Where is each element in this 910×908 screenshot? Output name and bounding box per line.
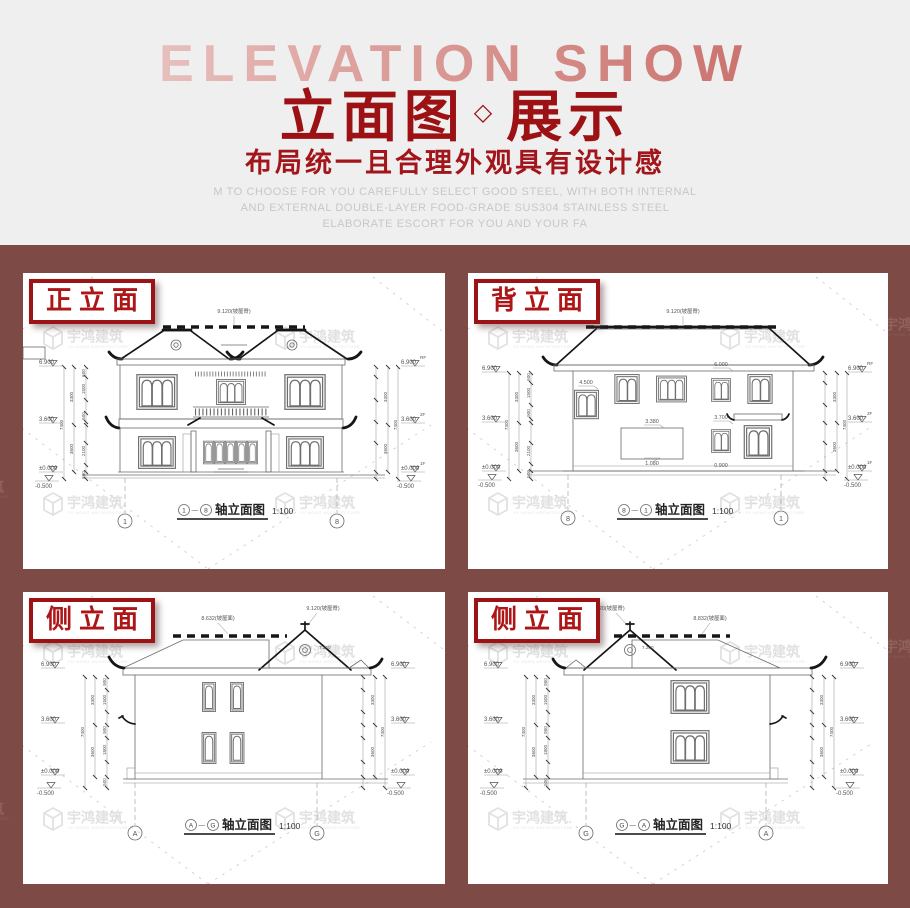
svg-text:500: 500 (81, 471, 86, 479)
svg-text:7400: 7400 (80, 726, 85, 737)
svg-text:1500: 1500 (526, 387, 531, 398)
svg-text:7400: 7400 (59, 419, 64, 430)
hero-description: M TO CHOOSE FOR YOU CAREFULLY SELECT GOO… (0, 184, 910, 232)
svg-text:3300: 3300 (531, 694, 536, 705)
svg-text:—: — (199, 823, 206, 830)
first-floor (118, 428, 344, 472)
watermark-logo (0, 477, 9, 499)
svg-text:6.900: 6.900 (401, 360, 417, 366)
svg-text:7400: 7400 (504, 419, 509, 430)
svg-text:6.900: 6.900 (840, 662, 856, 668)
svg-text:±0.000: ±0.000 (41, 769, 60, 775)
svg-text:—: — (192, 508, 199, 515)
svg-text:±0.000: ±0.000 (484, 769, 503, 775)
gable-annotation: 7.200 (319, 645, 331, 650)
dimensions-left: 900 1500 900 1800 500 3300 3600 7400 (80, 675, 109, 790)
svg-text:-0.500: -0.500 (37, 791, 55, 797)
svg-text:2100: 2100 (81, 445, 86, 456)
svg-text:6.000: 6.000 (714, 362, 728, 368)
svg-text:G: G (583, 829, 589, 838)
svg-text:3.600: 3.600 (401, 417, 417, 423)
svg-text:G: G (619, 822, 624, 829)
ground (528, 471, 836, 475)
svg-text:1:100: 1:100 (279, 821, 301, 831)
svg-text:500: 500 (102, 778, 107, 786)
svg-text:0.900: 0.900 (714, 463, 728, 469)
ridge-label: 9.120(坡屋脊) (666, 307, 699, 315)
svg-text:8: 8 (335, 517, 339, 526)
svg-text:3300: 3300 (819, 694, 824, 705)
svg-text:900: 900 (102, 678, 107, 686)
svg-text:3.600: 3.600 (41, 717, 57, 723)
svg-text:3600: 3600 (69, 443, 74, 454)
svg-text:±0.000: ±0.000 (391, 769, 410, 775)
card-front-elevation: 9.120(坡屋脊) (23, 273, 445, 569)
svg-text:6.900: 6.900 (484, 662, 500, 668)
svg-text:6.900: 6.900 (848, 366, 864, 372)
ground (123, 779, 388, 783)
svg-text:A: A (189, 822, 194, 829)
svg-text:3.380: 3.380 (645, 419, 659, 425)
svg-text:900: 900 (543, 726, 548, 734)
svg-text:7400: 7400 (842, 419, 847, 430)
gable-annotation: 7.200 (642, 645, 654, 650)
svg-text:RF: RF (867, 361, 873, 366)
elevation-markers: 6.900 3.600 ±0.000 -0.500 6.900 3.600 ±0… (480, 662, 864, 797)
svg-text:6.900: 6.900 (391, 662, 407, 668)
svg-text:轴立面图: 轴立面图 (653, 817, 703, 832)
dimensions-left: 900 1500 900 1800 500 3300 3600 7400 (521, 675, 550, 790)
mid-canopy (106, 417, 356, 428)
svg-text:1:100: 1:100 (272, 506, 294, 516)
svg-text:900: 900 (543, 678, 548, 686)
svg-text:7400: 7400 (521, 726, 526, 737)
ground (83, 475, 385, 478)
svg-text:1500: 1500 (81, 383, 86, 394)
diamond-icon: ◇ (474, 99, 498, 126)
svg-text:8: 8 (622, 507, 626, 514)
roof-label-right: 9.120(坡屋脊) (306, 604, 339, 612)
svg-text:±0.000: ±0.000 (840, 769, 859, 775)
svg-text:900: 900 (526, 409, 531, 417)
svg-text:±0.000: ±0.000 (401, 466, 420, 472)
svg-text:900: 900 (102, 726, 107, 734)
caption: 8 — 1 轴立面图 1:100 (617, 502, 734, 519)
dimensions-right: 3300 3600 7400 (823, 371, 849, 481)
roof-label-right: 8.832(坡屋面) (693, 614, 726, 622)
svg-text:3600: 3600 (514, 441, 519, 452)
desc-line-1: M TO CHOOSE FOR YOU CAREFULLY SELECT GOO… (0, 184, 910, 200)
svg-text:1F: 1F (867, 460, 873, 465)
elevation-markers: 6.900 3.600 ±0.000 -0.500 6.900 3.600 ±0… (37, 662, 415, 797)
svg-text:3600: 3600 (531, 746, 536, 757)
svg-text:3.600: 3.600 (840, 717, 856, 723)
svg-text:2F: 2F (420, 412, 426, 417)
dimensions-left: 600 1500 900 2100 500 3300 3600 7400 (504, 371, 533, 481)
svg-text:—: — (630, 823, 637, 830)
svg-text:3300: 3300 (90, 694, 95, 705)
svg-text:±0.000: ±0.000 (482, 465, 501, 471)
svg-text:500: 500 (543, 778, 548, 786)
svg-text:1.080: 1.080 (645, 461, 659, 467)
svg-text:500: 500 (526, 470, 531, 478)
svg-text:—: — (632, 508, 639, 515)
svg-text:3.600: 3.600 (39, 417, 55, 423)
svg-text:7400: 7400 (829, 726, 834, 737)
roof-label-left: 8.632(坡屋面) (201, 614, 234, 622)
svg-text:7400: 7400 (393, 419, 398, 430)
svg-text:轴立面图: 轴立面图 (655, 502, 705, 517)
svg-text:-0.500: -0.500 (35, 484, 53, 490)
svg-text:3600: 3600 (819, 746, 824, 757)
title-main: 立面图 (280, 85, 466, 148)
elevation-board: 9.120(坡屋脊) (0, 245, 910, 908)
svg-text:3600: 3600 (832, 441, 837, 452)
svg-text:A: A (642, 822, 647, 829)
page: 宇鸿建筑 YU HONG ARCHITECTURE ELEVATION SHOW… (0, 0, 910, 908)
card-side-elevation-ga: 9.120(坡屋脊) 8.832(坡屋面) 7.200 (468, 592, 888, 884)
svg-text:1: 1 (779, 514, 783, 523)
annotations: 4.500 6.000 3.380 1.080 3.700 0.900 (578, 362, 733, 469)
svg-text:3600: 3600 (90, 746, 95, 757)
svg-text:3.600: 3.600 (482, 416, 498, 422)
svg-text:600: 600 (526, 373, 531, 381)
svg-text:1:100: 1:100 (710, 821, 732, 831)
svg-text:1: 1 (123, 517, 127, 526)
svg-text:3.700: 3.700 (714, 415, 728, 421)
svg-text:-0.500: -0.500 (844, 483, 862, 489)
dimensions-right: 3300 3600 7400 (374, 365, 400, 481)
svg-text:轴立面图: 轴立面图 (215, 502, 265, 517)
card-label-side-ag: 侧立面 (29, 598, 155, 643)
ground (523, 779, 788, 783)
svg-text:-0.500: -0.500 (478, 483, 496, 489)
dimensions-left: 600 1500 600 2100 500 3300 3600 7400 (59, 365, 88, 481)
svg-text:600: 600 (81, 369, 86, 377)
svg-text:1800: 1800 (102, 744, 107, 755)
svg-text:1500: 1500 (102, 694, 107, 705)
svg-text:1: 1 (182, 507, 186, 514)
svg-text:4.500: 4.500 (579, 380, 593, 386)
card-label-back: 背立面 (474, 279, 600, 324)
desc-line-3: ELABORATE ESCORT FOR YOU AND YOUR FA (0, 216, 910, 232)
dimensions-right: 3300 3600 7400 (810, 675, 836, 790)
svg-text:3300: 3300 (383, 391, 388, 402)
svg-text:600: 600 (81, 412, 86, 420)
svg-text:-0.500: -0.500 (480, 791, 498, 797)
caption: G — A 轴立面图 1:100 (615, 817, 732, 834)
card-back-elevation: 9.120(坡屋脊) (468, 273, 888, 569)
hero-subtitle: 布局统一且合理外观具有设计感 (0, 141, 910, 180)
wall (119, 675, 322, 779)
svg-text:±0.000: ±0.000 (39, 466, 58, 472)
svg-text:6.900: 6.900 (39, 360, 55, 366)
svg-text:-0.500: -0.500 (397, 484, 415, 490)
wall (583, 675, 786, 779)
svg-text:3300: 3300 (69, 391, 74, 402)
svg-text:-0.500: -0.500 (836, 791, 854, 797)
svg-text:2100: 2100 (526, 445, 531, 456)
svg-text:3.600: 3.600 (848, 416, 864, 422)
svg-text:轴立面图: 轴立面图 (222, 817, 272, 832)
svg-text:1F: 1F (420, 461, 426, 466)
hero-section: ELEVATION SHOW 立面图◇展示 布局统一且合理外观具有设计感 M T… (0, 0, 910, 245)
card-label-front: 正立面 (29, 279, 155, 324)
svg-text:3.600: 3.600 (484, 717, 500, 723)
svg-text:6.900: 6.900 (41, 662, 57, 668)
svg-text:6.900: 6.900 (482, 366, 498, 372)
second-floor (120, 365, 342, 419)
svg-text:8: 8 (566, 514, 570, 523)
svg-text:1:100: 1:100 (712, 506, 734, 516)
svg-text:3300: 3300 (832, 391, 837, 402)
caption: A — G 轴立面图 1:100 (184, 817, 301, 834)
card-side-elevation-ag: 8.632(坡屋面) 9.120(坡屋脊) 7.200 (23, 592, 445, 884)
svg-text:3.600: 3.600 (391, 717, 407, 723)
wall (563, 371, 803, 471)
svg-text:G: G (314, 829, 320, 838)
svg-text:1800: 1800 (543, 744, 548, 755)
svg-text:3600: 3600 (383, 443, 388, 454)
svg-text:G: G (210, 822, 215, 829)
svg-text:1500: 1500 (543, 694, 548, 705)
dimensions-right: 3300 3600 7400 (361, 675, 387, 790)
watermark-logo (0, 799, 9, 821)
svg-text:2F: 2F (867, 411, 873, 416)
title-tail: 展示 (506, 85, 630, 148)
svg-text:8: 8 (204, 507, 208, 514)
elevation-markers: 6.900RF 3.6002F ±0.0001F -0.500 6.900 3.… (478, 361, 873, 489)
svg-text:1: 1 (644, 507, 648, 514)
svg-text:7400: 7400 (380, 726, 385, 737)
svg-text:3600: 3600 (370, 746, 375, 757)
desc-line-2: AND EXTERNAL DOUBLE-LAYER FOOD-GRADE SUS… (0, 200, 910, 216)
card-label-side-ga: 侧立面 (474, 598, 600, 643)
svg-text:RF: RF (420, 355, 426, 360)
svg-text:3300: 3300 (370, 694, 375, 705)
svg-text:A: A (764, 829, 769, 838)
ridge-label: 9.120(坡屋脊) (217, 307, 250, 315)
svg-text:-0.500: -0.500 (387, 791, 405, 797)
svg-text:±0.000: ±0.000 (848, 465, 867, 471)
svg-text:3300: 3300 (514, 391, 519, 402)
svg-text:A: A (133, 829, 138, 838)
